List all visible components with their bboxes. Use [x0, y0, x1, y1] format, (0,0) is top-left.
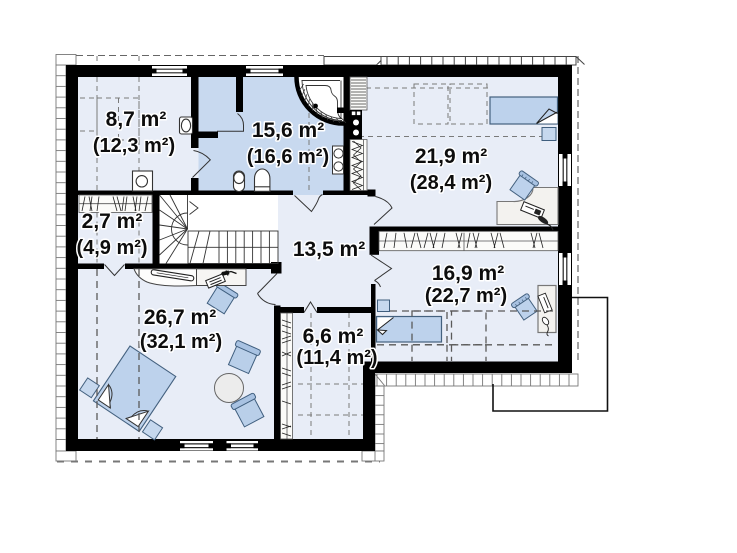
svg-text:(32,1 m²): (32,1 m²)	[140, 331, 222, 353]
svg-text:(4,9 m²): (4,9 m²)	[76, 237, 147, 259]
svg-text:(22,7 m²): (22,7 m²)	[425, 285, 507, 307]
svg-text:8,7 m²: 8,7 m²	[106, 108, 167, 131]
svg-text:21,9 m²: 21,9 m²	[415, 145, 487, 168]
svg-text:2,7 m²: 2,7 m²	[82, 210, 143, 233]
svg-text:26,7 m²: 26,7 m²	[144, 306, 216, 329]
svg-text:13,5 m²: 13,5 m²	[293, 238, 365, 261]
svg-text:(12,3 m²): (12,3 m²)	[93, 135, 175, 157]
svg-text:(16,6 m²): (16,6 m²)	[247, 146, 329, 168]
svg-text:15,6 m²: 15,6 m²	[252, 119, 324, 142]
svg-text:16,9 m²: 16,9 m²	[432, 262, 504, 285]
svg-text:6,6 m²: 6,6 m²	[303, 325, 364, 348]
svg-text:(11,4 m²): (11,4 m²)	[296, 347, 377, 369]
svg-text:(28,4 m²): (28,4 m²)	[410, 172, 492, 194]
